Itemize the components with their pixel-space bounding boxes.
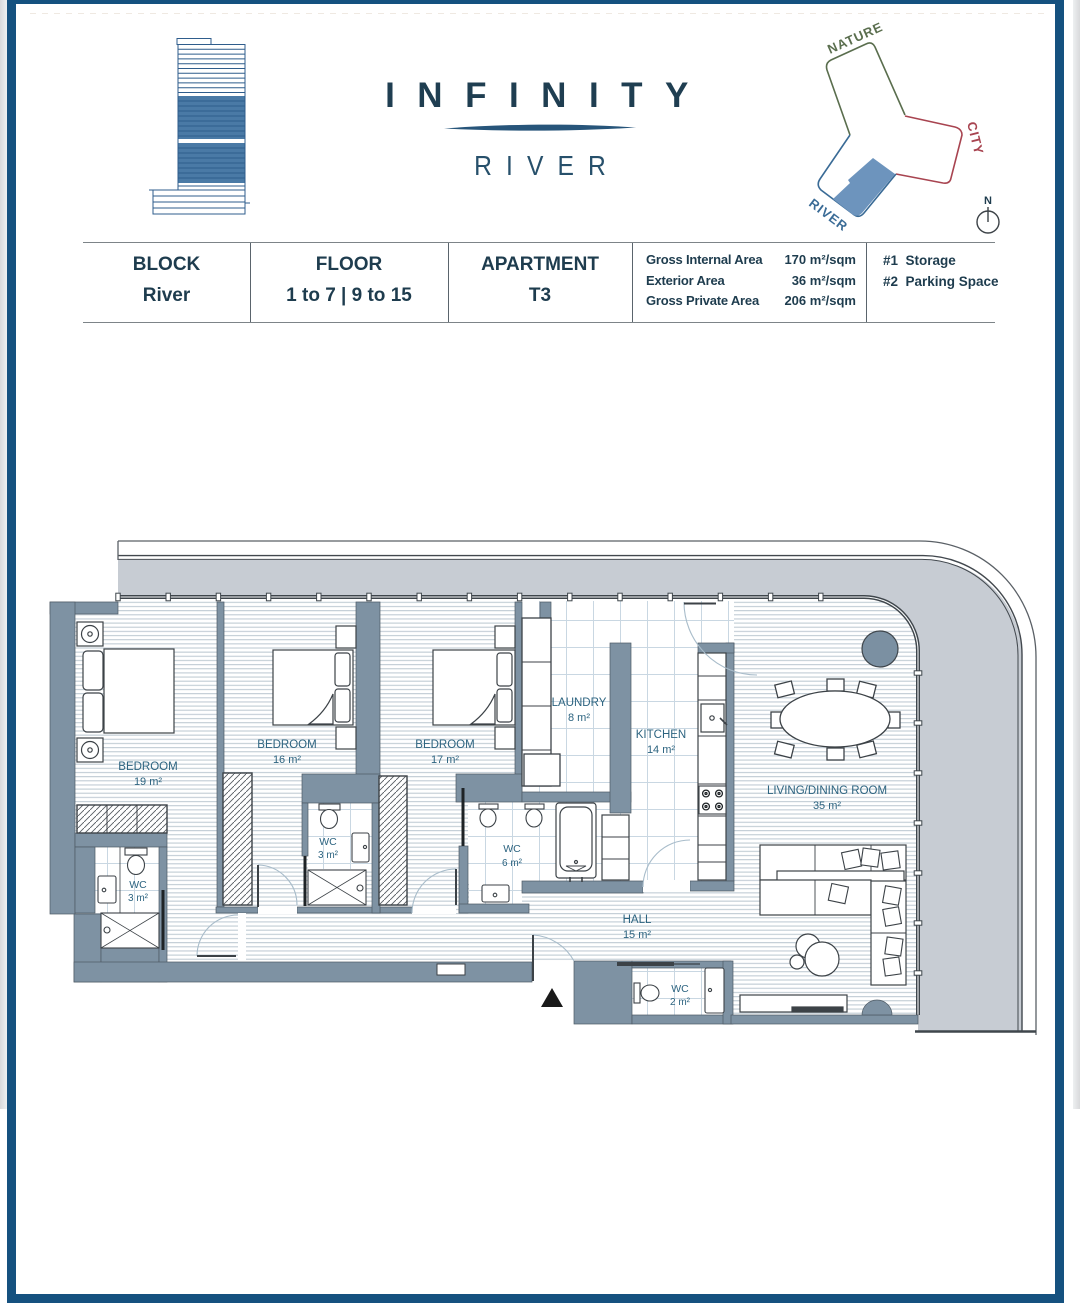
svg-text:LIVING/DINING ROOM: LIVING/DINING ROOM xyxy=(767,785,887,797)
svg-text:LAUNDRY: LAUNDRY xyxy=(552,697,607,709)
svg-text:16 m²: 16 m² xyxy=(273,754,301,766)
svg-text:15 m²: 15 m² xyxy=(623,929,651,941)
svg-text:3 m²: 3 m² xyxy=(318,850,339,861)
svg-text:HALL: HALL xyxy=(623,914,652,926)
svg-text:17 m²: 17 m² xyxy=(431,754,459,766)
svg-text:CITY: CITY xyxy=(964,120,987,156)
svg-text:KITCHEN: KITCHEN xyxy=(636,729,686,741)
svg-text:WC: WC xyxy=(671,983,689,995)
svg-text:2 m²: 2 m² xyxy=(670,997,691,1008)
svg-text:3 m²: 3 m² xyxy=(128,893,149,904)
svg-text:WC: WC xyxy=(319,836,337,848)
svg-text:WC: WC xyxy=(503,843,521,855)
svg-text:BEDROOM: BEDROOM xyxy=(415,739,474,751)
svg-text:19 m²: 19 m² xyxy=(134,776,162,788)
svg-text:35 m²: 35 m² xyxy=(813,800,841,812)
svg-text:WC: WC xyxy=(129,879,147,891)
svg-text:8 m²: 8 m² xyxy=(568,712,590,724)
svg-text:BEDROOM: BEDROOM xyxy=(257,739,316,751)
svg-text:6 m²: 6 m² xyxy=(502,858,523,869)
svg-text:BEDROOM: BEDROOM xyxy=(118,761,177,773)
svg-text:N: N xyxy=(984,195,992,207)
svg-text:14 m²: 14 m² xyxy=(647,744,675,756)
